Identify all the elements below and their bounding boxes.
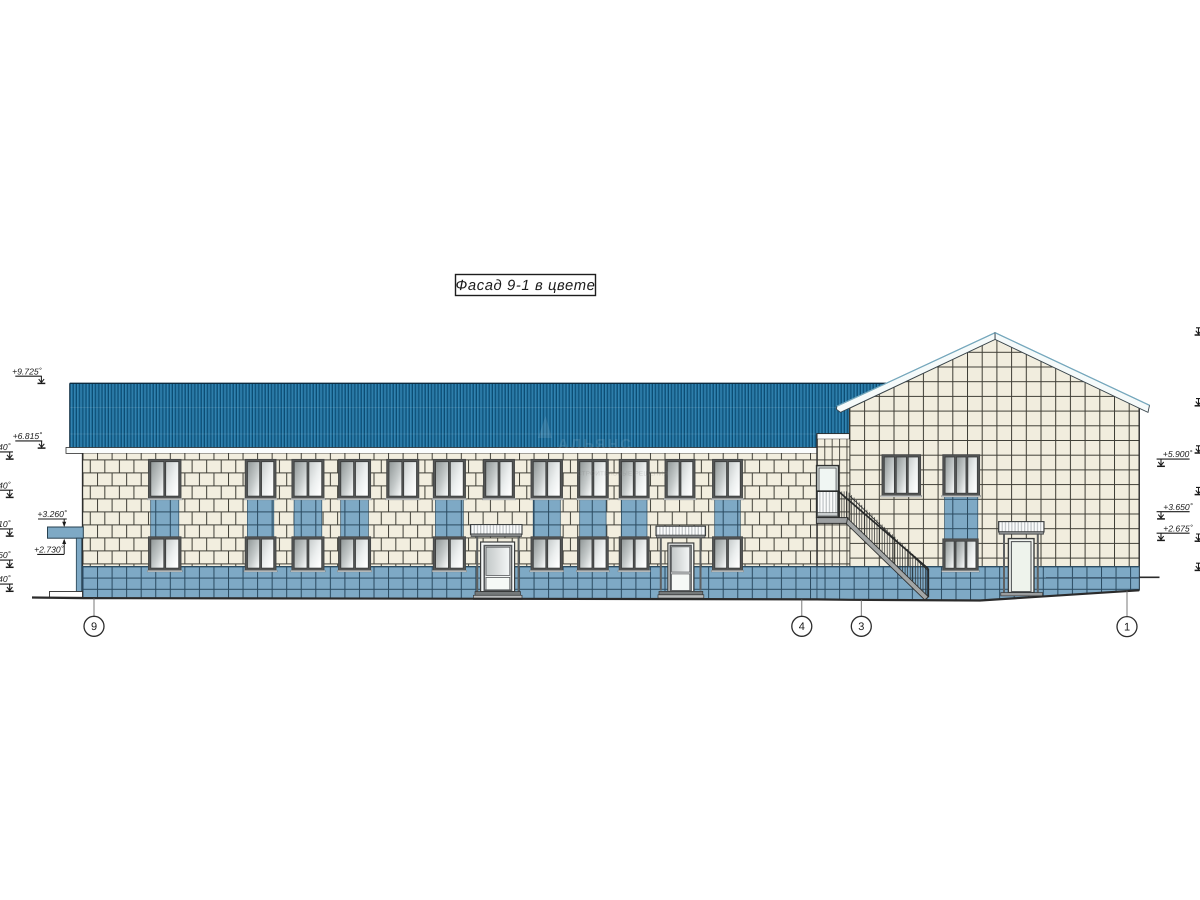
svg-text:СТРОИТЕЛЬНЫЕ РЕШЕНИЯ: СТРОИТЕЛЬНЫЕ РЕШЕНИЯ	[577, 471, 669, 478]
svg-text:АЛЬЯНС: АЛЬЯНС	[558, 437, 633, 453]
svg-text:+5.540˚: +5.540˚	[0, 442, 11, 452]
svg-text:+3.350˚: +3.350˚	[0, 550, 11, 560]
svg-text:Фасад 9-1 в цвете: Фасад 9-1 в цвете	[456, 278, 596, 294]
svg-text:+2.840˚: +2.840˚	[0, 574, 11, 584]
svg-text:9: 9	[91, 621, 97, 633]
svg-text:4: 4	[799, 621, 805, 633]
svg-text:1: 1	[1124, 621, 1130, 633]
svg-text:+4.110˚: +4.110˚	[0, 519, 11, 529]
svg-text:+3.260˚: +3.260˚	[37, 509, 67, 519]
svg-text:+2.675˚: +2.675˚	[1163, 523, 1193, 533]
svg-text:+4.840˚: +4.840˚	[0, 480, 11, 490]
svg-text:3: 3	[858, 621, 864, 633]
svg-text:+2.730˚: +2.730˚	[34, 545, 64, 555]
svg-text:+9.725˚: +9.725˚	[12, 366, 42, 376]
svg-text:+6.815˚: +6.815˚	[13, 431, 43, 441]
svg-text:+3.650˚: +3.650˚	[1163, 502, 1193, 512]
svg-text:+5.900˚: +5.900˚	[1163, 449, 1193, 459]
